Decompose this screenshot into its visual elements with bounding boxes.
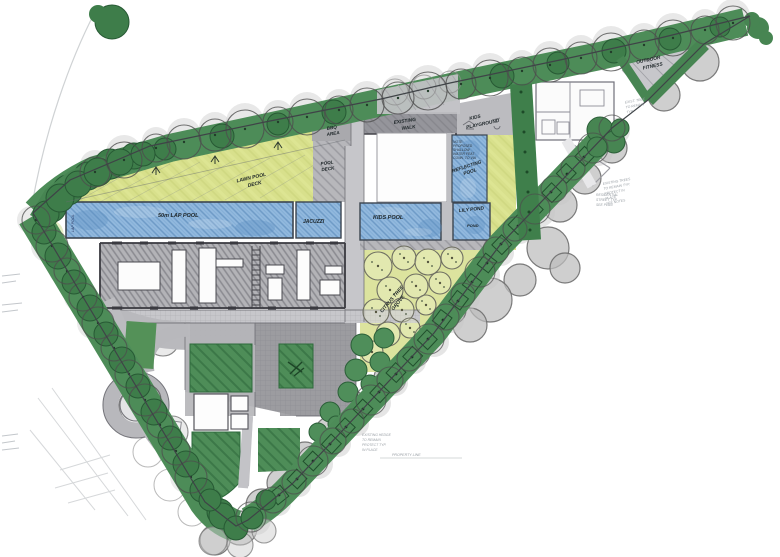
svg-text:POND: POND [467, 223, 479, 228]
svg-text:JACUZZI: JACUZZI [303, 219, 325, 225]
svg-text:EXISTING HEDGE: EXISTING HEDGE [362, 433, 392, 437]
svg-text:50m LAP POOL: 50m LAP POOL [158, 213, 199, 219]
svg-text:IN PLACE: IN PLACE [362, 448, 378, 452]
svg-text:RESIDENTIAL: RESIDENTIAL [596, 193, 618, 197]
svg-text:STREET TYP.: STREET TYP. [596, 198, 618, 202]
svg-text:PROTECT TYP.: PROTECT TYP. [362, 443, 386, 447]
svg-text:SEE PLAN: SEE PLAN [596, 203, 613, 207]
svg-text:CONN. TO VIA: CONN. TO VIA [453, 156, 477, 160]
svg-text:PROPERTY LINE: PROPERTY LINE [392, 453, 421, 457]
svg-text:TO REMAIN: TO REMAIN [362, 438, 381, 442]
svg-text:KIDS POOL: KIDS POOL [373, 215, 404, 221]
svg-text:LAP POOL: LAP POOL [71, 214, 75, 232]
